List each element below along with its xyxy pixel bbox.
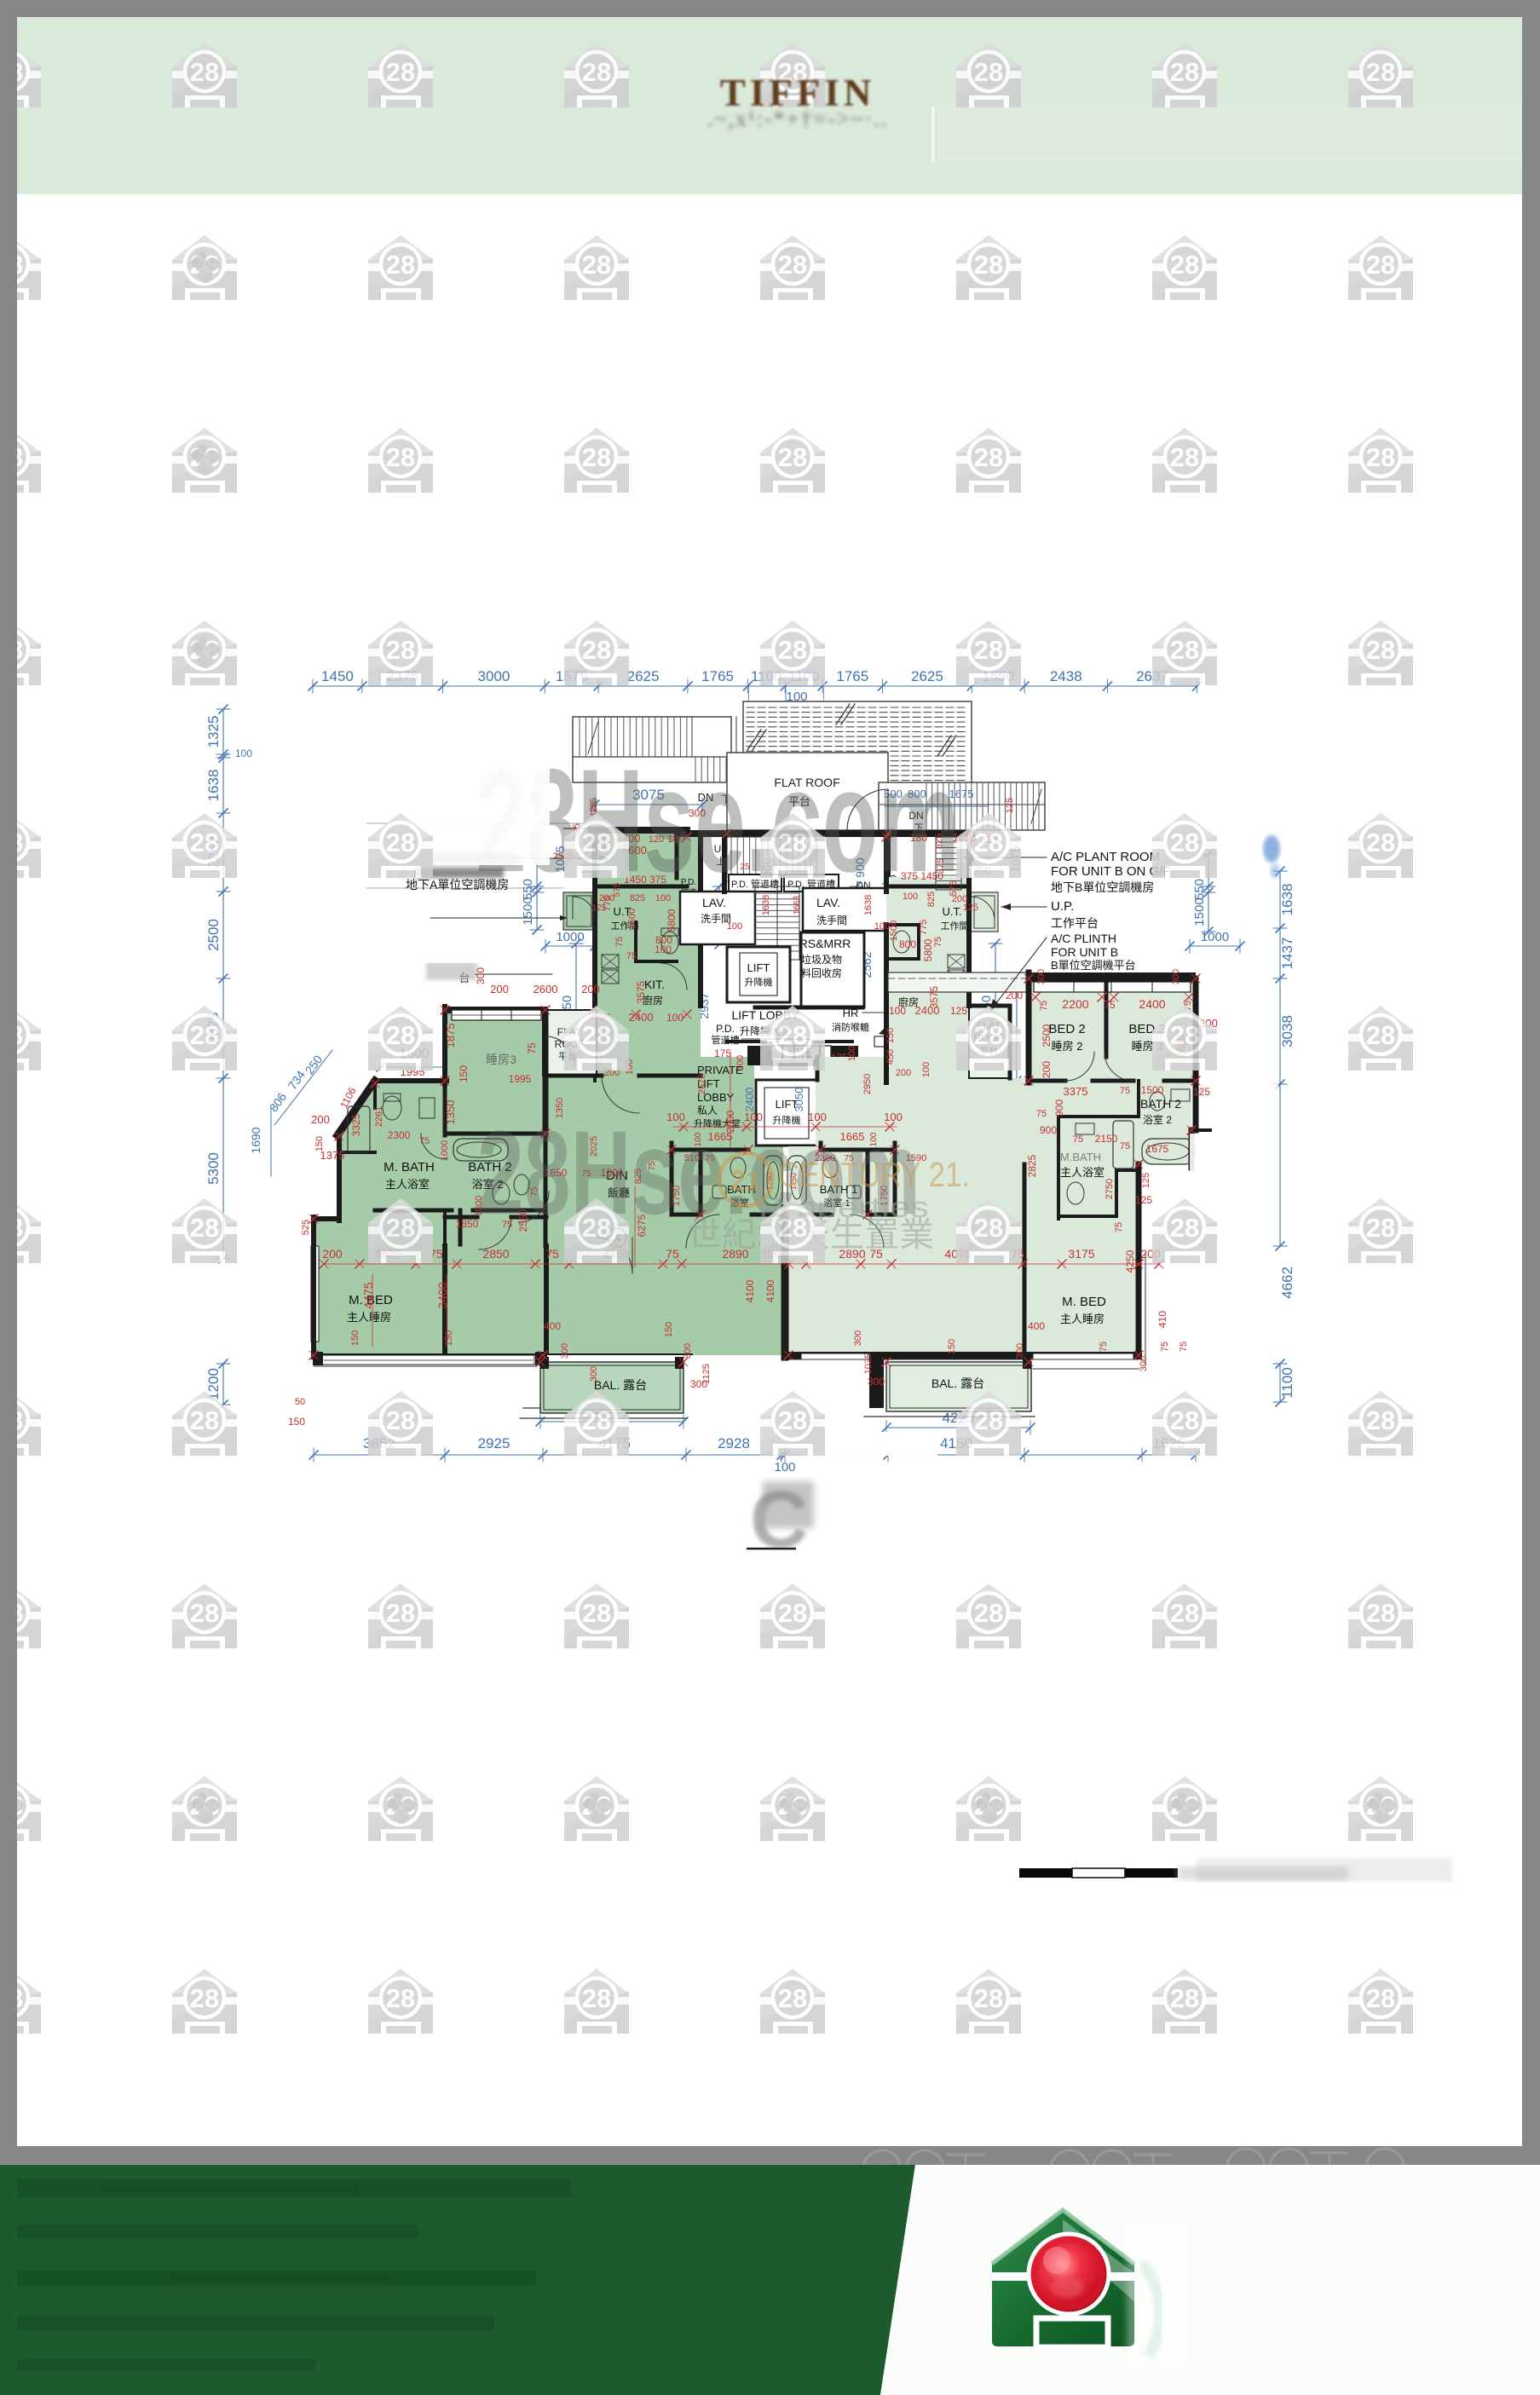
- svg-text:2500: 2500: [205, 919, 222, 951]
- svg-text:75: 75: [1120, 1141, 1130, 1151]
- svg-text:100: 100: [235, 747, 252, 759]
- svg-text:300: 300: [560, 1343, 570, 1359]
- svg-text:主人睡房: 主人睡房: [347, 1311, 391, 1324]
- svg-text:3000: 3000: [478, 668, 510, 684]
- svg-text:4100: 4100: [764, 1279, 776, 1302]
- svg-text:1875: 1875: [444, 1024, 457, 1048]
- svg-text:1500: 1500: [1141, 1084, 1164, 1096]
- svg-text:2438: 2438: [1050, 668, 1082, 684]
- svg-text:400: 400: [1028, 1320, 1045, 1332]
- svg-text:125: 125: [963, 903, 978, 913]
- svg-text:100: 100: [735, 1055, 746, 1071]
- svg-text:75: 75: [666, 1247, 679, 1261]
- svg-text:200: 200: [322, 1247, 343, 1261]
- svg-text:300: 300: [1015, 1343, 1025, 1359]
- svg-text:1000: 1000: [440, 1140, 450, 1161]
- svg-text:150: 150: [664, 1322, 674, 1337]
- svg-text:200: 200: [1041, 1061, 1053, 1078]
- svg-text:.~,x¹:-*+†=->~·..: .~,x¹:-*+†=->~·..: [707, 107, 888, 131]
- svg-text:100: 100: [727, 921, 742, 932]
- svg-text:75: 75: [526, 1042, 538, 1054]
- svg-text:550: 550: [1192, 879, 1207, 900]
- svg-text:300: 300: [1139, 1356, 1149, 1371]
- svg-text:1350: 1350: [444, 1100, 457, 1125]
- svg-text:775: 775: [919, 920, 929, 935]
- svg-text:100: 100: [889, 1005, 906, 1017]
- svg-text:BATH 2: BATH 2: [1140, 1097, 1181, 1111]
- svg-text:1437: 1437: [1279, 938, 1295, 970]
- svg-text:洗手間: 洗手間: [816, 915, 847, 926]
- svg-text:200: 200: [896, 1068, 911, 1078]
- svg-text:300: 300: [853, 1330, 863, 1346]
- svg-text:200: 200: [1006, 990, 1023, 1001]
- svg-text:2925: 2925: [478, 1435, 510, 1451]
- svg-text:410: 410: [1156, 1311, 1168, 1328]
- svg-text:150: 150: [444, 1330, 454, 1346]
- svg-text:KIT.: KIT.: [644, 978, 665, 991]
- svg-text:2950: 2950: [862, 1074, 873, 1094]
- svg-text:1325: 1325: [205, 716, 222, 748]
- svg-text:1500: 1500: [889, 920, 899, 941]
- svg-text:75: 75: [1179, 1342, 1189, 1352]
- svg-text:21: 21: [730, 1165, 762, 1197]
- svg-text:3038: 3038: [1279, 1015, 1295, 1047]
- svg-text:3175: 3175: [1068, 1247, 1094, 1261]
- svg-text:4100: 4100: [744, 1279, 756, 1302]
- svg-text:300: 300: [1036, 969, 1047, 984]
- svg-text:2600: 2600: [534, 983, 558, 996]
- svg-text:75: 75: [1099, 1342, 1109, 1352]
- svg-text:2300: 2300: [388, 1129, 411, 1141]
- svg-text:150: 150: [458, 1065, 470, 1082]
- svg-text:4475: 4475: [361, 1282, 375, 1308]
- svg-text:A/C PLINTH: A/C PLINTH: [1051, 932, 1116, 945]
- svg-text:A/C PLANT ROOM: A/C PLANT ROOM: [1051, 850, 1160, 864]
- svg-text:1675: 1675: [1146, 1143, 1169, 1155]
- svg-text:2825: 2825: [1026, 1154, 1038, 1177]
- svg-text:1995: 1995: [509, 1073, 532, 1085]
- svg-text:300: 300: [868, 1376, 885, 1388]
- svg-text:75: 75: [419, 1136, 430, 1146]
- svg-text:125: 125: [1141, 1173, 1151, 1188]
- svg-text:125: 125: [1135, 1194, 1152, 1206]
- svg-text:1765: 1765: [701, 668, 734, 684]
- svg-text:2400: 2400: [629, 1011, 654, 1024]
- svg-text:450: 450: [885, 1049, 896, 1065]
- svg-text:1638: 1638: [205, 770, 222, 802]
- svg-text:B單位空調機平台: B單位空調機平台: [1051, 959, 1136, 972]
- svg-text:主人浴室: 主人浴室: [1060, 1166, 1105, 1179]
- svg-text:75: 75: [626, 951, 637, 961]
- svg-text:料回收房: 料回收房: [801, 967, 842, 979]
- svg-text:200: 200: [490, 983, 509, 996]
- svg-text:地下B單位空調機房: 地下B單位空調機房: [1051, 880, 1154, 894]
- svg-text:CENTURY 21.: CENTURY 21.: [778, 1155, 970, 1194]
- svg-text:125: 125: [950, 1005, 967, 1017]
- svg-text:75: 75: [614, 937, 625, 947]
- svg-text:垃圾及物: 垃圾及物: [801, 953, 842, 966]
- svg-text:100: 100: [655, 944, 672, 955]
- svg-text:2625: 2625: [911, 668, 943, 684]
- svg-text:75: 75: [1120, 1086, 1130, 1096]
- svg-text:主人浴室: 主人浴室: [385, 1178, 430, 1191]
- svg-text:125: 125: [1193, 1086, 1210, 1098]
- svg-text:M. BATH: M. BATH: [384, 1160, 435, 1174]
- svg-text:工作平台: 工作平台: [1051, 916, 1099, 930]
- svg-text:2625: 2625: [627, 668, 660, 684]
- svg-text:800: 800: [899, 938, 916, 950]
- svg-text:100: 100: [921, 1062, 931, 1077]
- svg-text:2400: 2400: [915, 1004, 940, 1017]
- svg-text:2261: 2261: [374, 1106, 384, 1127]
- svg-text:5800: 5800: [666, 909, 678, 932]
- svg-text:75: 75: [1073, 1134, 1083, 1145]
- svg-text:1100: 1100: [1279, 1367, 1295, 1399]
- svg-text:主人睡房: 主人睡房: [1060, 1313, 1105, 1325]
- svg-text:300: 300: [683, 1343, 693, 1359]
- svg-text:浴室 2: 浴室 2: [1143, 1113, 1172, 1126]
- svg-text:150: 150: [288, 1416, 305, 1428]
- svg-text:75: 75: [545, 1247, 559, 1261]
- svg-text:M.BATH: M.BATH: [1060, 1151, 1101, 1163]
- svg-text:2150: 2150: [1095, 1133, 1118, 1145]
- svg-text:200: 200: [311, 1113, 330, 1126]
- svg-text:300: 300: [1171, 969, 1181, 984]
- svg-text:3400: 3400: [435, 1282, 449, 1308]
- svg-text:1375: 1375: [320, 1149, 345, 1162]
- svg-text:睡房 2: 睡房 2: [1052, 1040, 1083, 1053]
- svg-text:睡房3: 睡房3: [486, 1053, 516, 1066]
- svg-text:2850: 2850: [482, 1247, 509, 1261]
- svg-text:75: 75: [1039, 1001, 1049, 1011]
- svg-text:3375: 3375: [1064, 1085, 1088, 1098]
- svg-text:50: 50: [295, 1397, 305, 1407]
- svg-text:4662: 4662: [1279, 1267, 1295, 1299]
- svg-text:900: 900: [1053, 1099, 1065, 1117]
- svg-text:1025: 1025: [863, 1353, 874, 1374]
- svg-text:U.P.: U.P.: [1051, 899, 1074, 914]
- svg-text:2200: 2200: [1062, 997, 1088, 1011]
- svg-text:100: 100: [666, 1012, 683, 1024]
- svg-text:2500: 2500: [1041, 1024, 1053, 1047]
- svg-text:1450: 1450: [321, 668, 354, 684]
- svg-text:消防喉轆: 消防喉轆: [832, 1021, 869, 1033]
- svg-text:1690: 1690: [249, 1127, 262, 1153]
- svg-text:75: 75: [1104, 999, 1116, 1011]
- svg-text:400: 400: [544, 1320, 561, 1332]
- svg-text:BED 2: BED 2: [1048, 1022, 1085, 1036]
- svg-text:2400: 2400: [1139, 997, 1165, 1011]
- svg-text:升降機: 升降機: [745, 976, 773, 988]
- svg-text:2928: 2928: [718, 1435, 750, 1451]
- svg-text:100: 100: [874, 921, 890, 932]
- svg-text:LIFT: LIFT: [747, 961, 770, 974]
- svg-text:M. BED: M. BED: [1062, 1295, 1106, 1309]
- svg-text:U.T.: U.T.: [942, 905, 961, 918]
- svg-text:75: 75: [1036, 1109, 1047, 1119]
- svg-text:150: 150: [947, 1339, 957, 1354]
- svg-text:1000: 1000: [556, 930, 584, 944]
- svg-text:3575: 3575: [635, 980, 647, 1003]
- svg-text:1125: 1125: [701, 1364, 712, 1384]
- svg-text:75: 75: [933, 937, 943, 947]
- svg-text:100: 100: [774, 1460, 795, 1475]
- svg-text:1638: 1638: [1279, 884, 1295, 916]
- svg-text:5300: 5300: [205, 1152, 222, 1185]
- svg-text:1765: 1765: [836, 668, 868, 684]
- svg-text:BAL. 露台: BAL. 露台: [931, 1376, 984, 1390]
- svg-text:RS&MRR: RS&MRR: [799, 937, 851, 950]
- svg-text:FOR UNIT B: FOR UNIT B: [1051, 945, 1118, 959]
- svg-text:P.D.: P.D.: [716, 1023, 735, 1035]
- svg-text:1500: 1500: [627, 909, 637, 929]
- svg-text:1000: 1000: [1201, 930, 1229, 944]
- svg-text:工作間: 工作間: [941, 920, 969, 932]
- svg-text:1500: 1500: [1192, 897, 1207, 926]
- svg-text:1850: 1850: [456, 1218, 479, 1230]
- svg-text:3325: 3325: [350, 1113, 362, 1136]
- svg-text:2575: 2575: [697, 1074, 707, 1094]
- svg-text:2750: 2750: [1105, 1179, 1115, 1199]
- svg-text:4250: 4250: [1124, 1249, 1136, 1273]
- svg-text:5800: 5800: [922, 938, 934, 961]
- svg-text:300: 300: [475, 967, 487, 984]
- svg-text:100: 100: [847, 1046, 857, 1061]
- svg-text:75: 75: [1160, 1342, 1170, 1352]
- svg-text:200: 200: [581, 983, 600, 996]
- svg-text:900: 900: [1040, 1124, 1057, 1136]
- svg-text:150: 150: [885, 1028, 896, 1043]
- svg-text:BAL. 露台: BAL. 露台: [594, 1378, 647, 1392]
- svg-text:525: 525: [301, 1220, 311, 1235]
- svg-text:125: 125: [1005, 798, 1015, 813]
- svg-text:75: 75: [1114, 1222, 1124, 1232]
- svg-text:175: 175: [714, 1047, 731, 1059]
- svg-text:150: 150: [350, 1330, 360, 1346]
- svg-text:300: 300: [589, 1366, 599, 1382]
